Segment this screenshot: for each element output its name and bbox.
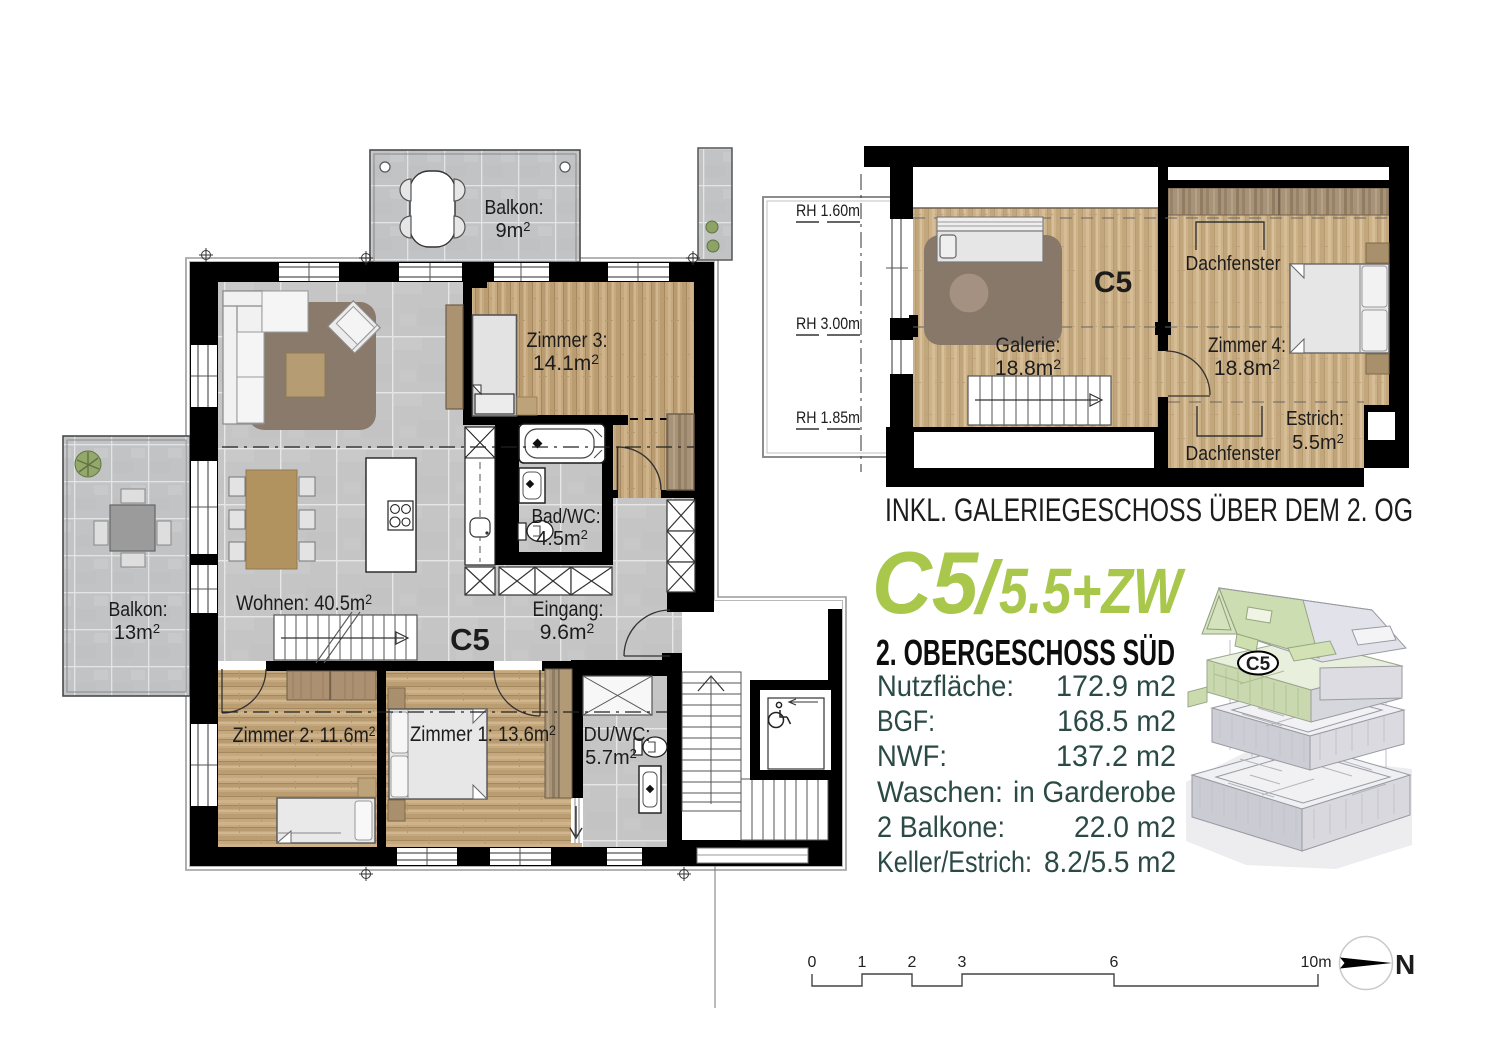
svg-text:18.8m2: 18.8m2 (995, 356, 1061, 380)
svg-text:Eingang:: Eingang: (533, 598, 604, 621)
svg-text:C5: C5 (1246, 654, 1271, 675)
svg-text:2 Balkone:: 2 Balkone: (877, 811, 1005, 844)
svg-text:3: 3 (958, 954, 967, 971)
svg-text:5.7m2: 5.7m2 (585, 746, 637, 769)
svg-text:Keller/Estrich:: Keller/Estrich: (877, 846, 1032, 879)
svg-text:2: 2 (908, 954, 917, 971)
svg-text:C5: C5 (450, 622, 490, 657)
svg-text:22.0 m2: 22.0 m2 (1074, 811, 1176, 844)
svg-text:4.5m2: 4.5m2 (536, 527, 588, 550)
svg-text:RH 1.85m: RH 1.85m (796, 408, 860, 427)
svg-text:6: 6 (1110, 954, 1119, 971)
svg-text:18.8m2: 18.8m2 (1214, 356, 1280, 380)
svg-text:Bad/WC:: Bad/WC: (532, 506, 601, 528)
svg-text:5.5m2: 5.5m2 (1292, 431, 1344, 454)
svg-text:Waschen:: Waschen: (877, 776, 1003, 809)
svg-text:Zimmer 2: 11.6m2: Zimmer 2: 11.6m2 (233, 723, 376, 747)
svg-text:Dachfenster: Dachfenster (1186, 443, 1281, 465)
svg-text:Galerie:: Galerie: (996, 334, 1061, 357)
svg-text:1: 1 (858, 954, 867, 971)
svg-text:Zimmer 1: 13.6m2: Zimmer 1: 13.6m2 (410, 722, 556, 746)
svg-text:14.1m2: 14.1m2 (533, 351, 599, 375)
svg-text:NWF:: NWF: (877, 740, 947, 773)
svg-text:Balkon:: Balkon: (485, 197, 544, 219)
svg-text:RH 1.60m: RH 1.60m (796, 201, 860, 220)
svg-text:Nutzfläche:: Nutzfläche: (877, 670, 1014, 703)
svg-text:in Garderobe: in Garderobe (1013, 776, 1176, 809)
svg-text:Zimmer 4:: Zimmer 4: (1208, 334, 1286, 357)
svg-text:Zimmer 3:: Zimmer 3: (527, 329, 608, 352)
svg-text:2. OBERGESCHOSS SÜD: 2. OBERGESCHOSS SÜD (876, 632, 1175, 673)
svg-text:BGF:: BGF: (877, 705, 935, 738)
svg-text:9.6m2: 9.6m2 (540, 620, 595, 644)
svg-text:DU/WC:: DU/WC: (584, 724, 651, 746)
svg-text:C5: C5 (872, 533, 979, 632)
svg-text:10m: 10m (1300, 954, 1331, 971)
svg-text:N: N (1395, 949, 1415, 980)
svg-text:172.9 m2: 172.9 m2 (1056, 670, 1176, 703)
svg-text:INKL. GALERIEGESCHOSS ÜBER DEM: INKL. GALERIEGESCHOSS ÜBER DEM 2. OG (885, 492, 1413, 528)
svg-text:8.2/5.5 m2: 8.2/5.5 m2 (1044, 846, 1176, 879)
svg-text:0: 0 (808, 954, 817, 971)
svg-text:Estrich:: Estrich: (1286, 408, 1344, 430)
svg-text:RH 3.00m: RH 3.00m (796, 314, 860, 333)
svg-text:Balkon:: Balkon: (109, 599, 168, 621)
svg-text:Dachfenster: Dachfenster (1186, 253, 1281, 275)
svg-text:5.5+ZW: 5.5+ZW (999, 555, 1186, 627)
svg-text:Wohnen: 40.5m2: Wohnen: 40.5m2 (236, 591, 372, 615)
svg-text:C5: C5 (1094, 266, 1132, 299)
svg-text:168.5 m2: 168.5 m2 (1057, 705, 1176, 738)
svg-text:137.2 m2: 137.2 m2 (1056, 740, 1176, 773)
